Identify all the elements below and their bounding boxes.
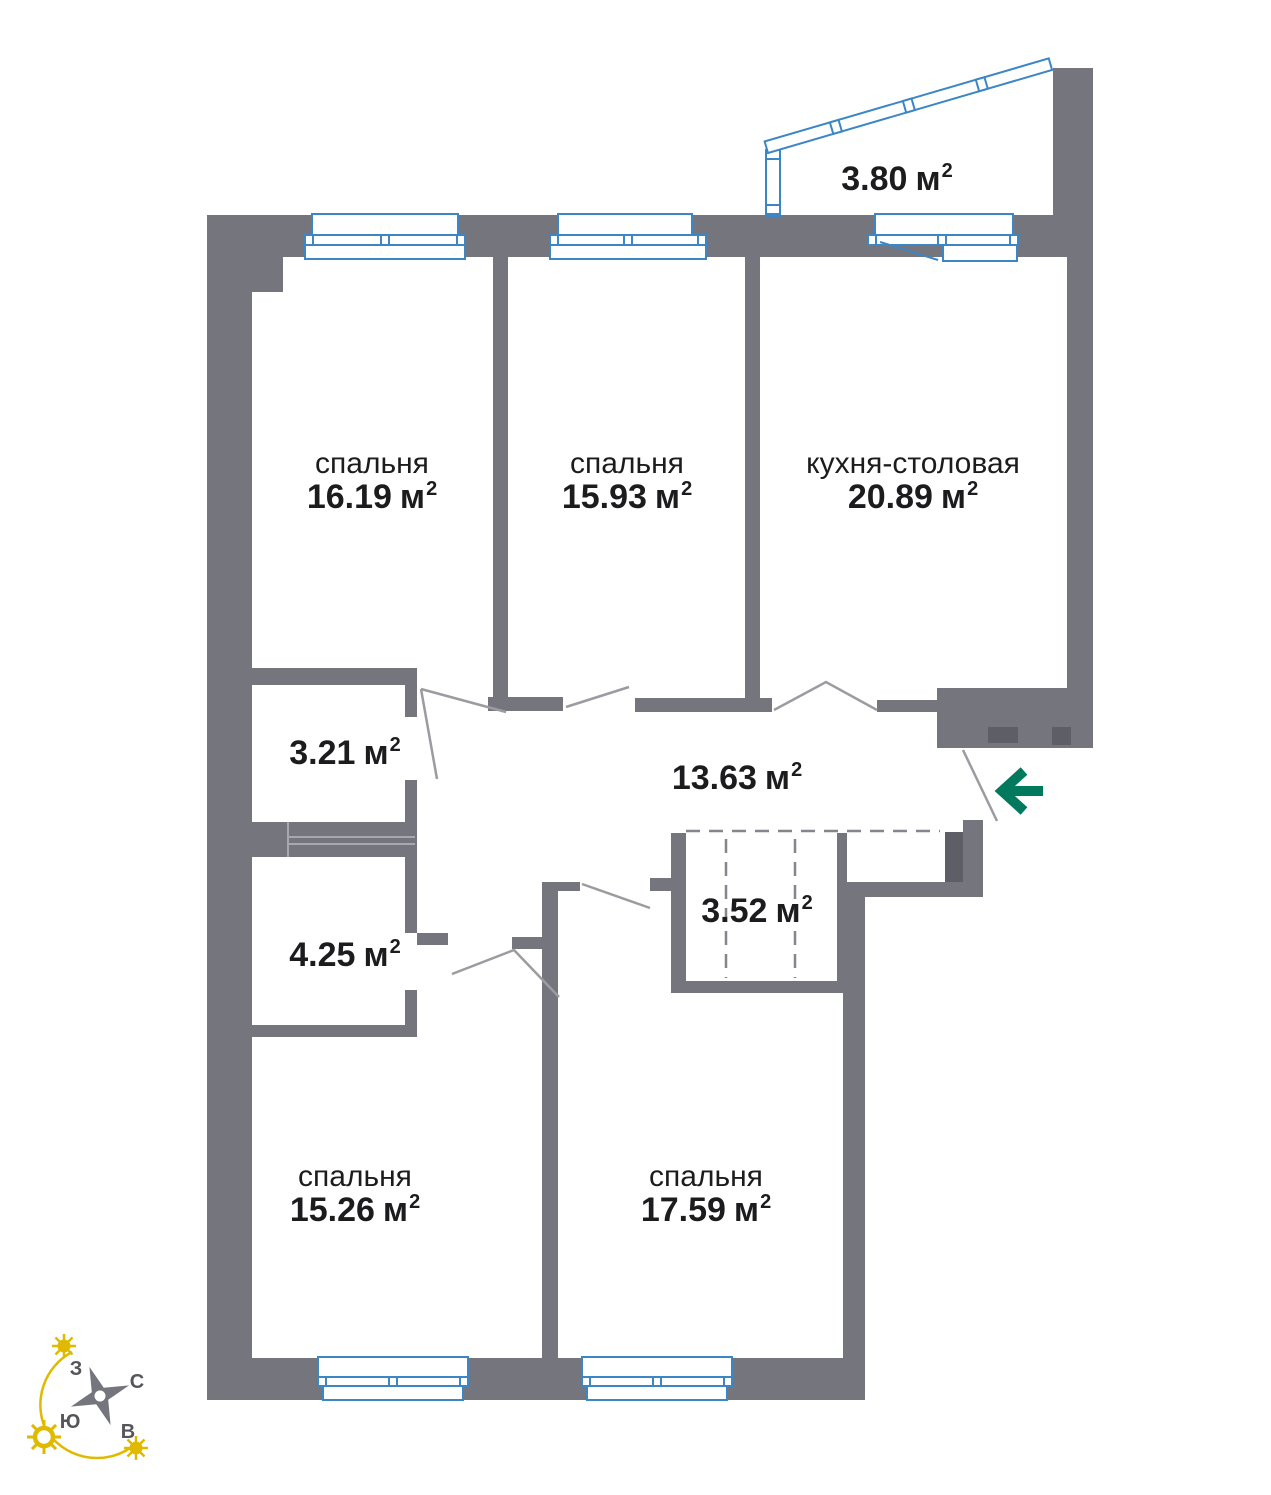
compass-north-label: С — [130, 1371, 144, 1393]
wall-stub-storage — [417, 933, 448, 945]
room-area-bedroom-4: 17.59м2 — [641, 1191, 771, 1229]
sun-icon-west — [27, 1420, 61, 1454]
room-area-bedroom-2: 15.93м2 — [562, 478, 692, 516]
wall-hall-small-right-top — [405, 685, 417, 717]
compass-east-label: В — [121, 1421, 135, 1443]
shaft-box-1 — [988, 727, 1018, 743]
wall-wardrobe-left — [671, 833, 686, 993]
wall-divider-bedroom3-bedroom4 — [542, 882, 558, 1360]
window-bedroom-1 — [305, 214, 465, 259]
wall-stub-bedroom3-door — [512, 937, 542, 949]
room-area-hallway: 13.63м2 — [672, 759, 802, 797]
room-label-bedroom-1: спальня — [315, 447, 429, 480]
room-area-bedroom-3: 15.26м2 — [290, 1191, 420, 1229]
sun-icon-top — [52, 1334, 76, 1358]
wall-hall-small-right-bottom — [405, 780, 417, 822]
room-label-bedroom-2: спальня — [570, 447, 684, 480]
room-label-bedroom-4: спальня — [649, 1160, 763, 1193]
entrance-arrow-icon — [1002, 771, 1043, 811]
window-bedroom-4 — [582, 1357, 732, 1400]
compass-rose: З С Ю В — [27, 1334, 148, 1460]
wall-stub-wardrobe-left — [650, 878, 673, 891]
window-bedroom-2 — [550, 214, 706, 259]
wall-left — [207, 215, 252, 1400]
room-area-hall-small: 3.21м2 — [289, 734, 400, 772]
wall-shaft-block — [252, 822, 417, 857]
door-swing-kitchen — [774, 682, 877, 710]
entry-pilaster — [945, 832, 963, 882]
wall-divider-bedroom2-kitchen — [745, 257, 760, 702]
wall-stub-bedroom4-door — [558, 882, 580, 891]
wall-right-upper — [1067, 215, 1093, 748]
compass-south-label: Ю — [60, 1411, 81, 1433]
wall-balcony-right — [1053, 68, 1093, 218]
room-area-storage: 4.25м2 — [289, 936, 400, 974]
door-swing-entrance — [963, 750, 997, 821]
room-area-wardrobe: 3.52м2 — [701, 892, 812, 930]
room-labels: спальня 16.19м2 спальня 15.93м2 кухня-ст… — [289, 160, 1020, 1229]
room-area-bedroom-1: 16.19м2 — [307, 478, 437, 516]
wall-bedroom3-top — [207, 1025, 417, 1037]
floor-plan: З С Ю В спальня 16.19м2 спальня 15.93м2 … — [0, 0, 1271, 1495]
room-area-kitchen: 20.89м2 — [848, 478, 978, 516]
wall-stub-kitchen-left — [635, 698, 772, 712]
room-label-bedroom-3: спальня — [298, 1160, 412, 1193]
wall-divider-bedroom1-bedroom2 — [493, 257, 508, 705]
shaft-box-2 — [1052, 727, 1071, 745]
room-label-kitchen: кухня-столовая — [806, 447, 1020, 480]
door-swings — [421, 682, 997, 997]
room-area-balcony: 3.80м2 — [841, 160, 952, 198]
balcony-glazing — [765, 58, 1052, 216]
wall-bottom — [207, 1358, 865, 1400]
wall-stub-kitchen-right — [877, 700, 937, 712]
door-swing-hall-small — [421, 689, 437, 779]
door-swing-bedroom-2 — [566, 687, 629, 707]
wall-bedroom1-bottom — [207, 668, 417, 685]
door-swing-bedroom-4 — [582, 884, 650, 908]
window-bedroom-3 — [318, 1357, 468, 1400]
compass-west-label: З — [70, 1358, 83, 1380]
wall-wardrobe-right — [837, 833, 847, 993]
balcony-door-opening — [943, 245, 1017, 261]
wall-wardrobe-bottom — [671, 981, 847, 993]
wall-storage-right-top — [405, 857, 417, 933]
